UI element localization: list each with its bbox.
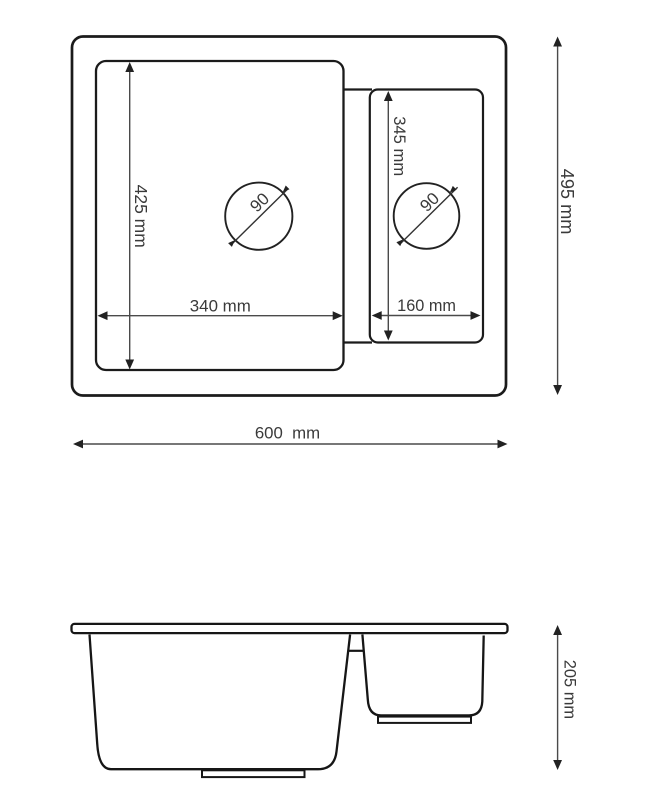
svg-text:340 mm: 340 mm (190, 296, 251, 315)
svg-text:345 mm: 345 mm (390, 116, 409, 176)
svg-text:205 mm: 205 mm (560, 660, 578, 719)
svg-text:495 mm: 495 mm (557, 169, 577, 235)
svg-text:425 mm: 425 mm (131, 185, 151, 248)
svg-text:160 mm: 160 mm (397, 297, 456, 315)
svg-text:600 mm: 600 mm (255, 424, 320, 443)
